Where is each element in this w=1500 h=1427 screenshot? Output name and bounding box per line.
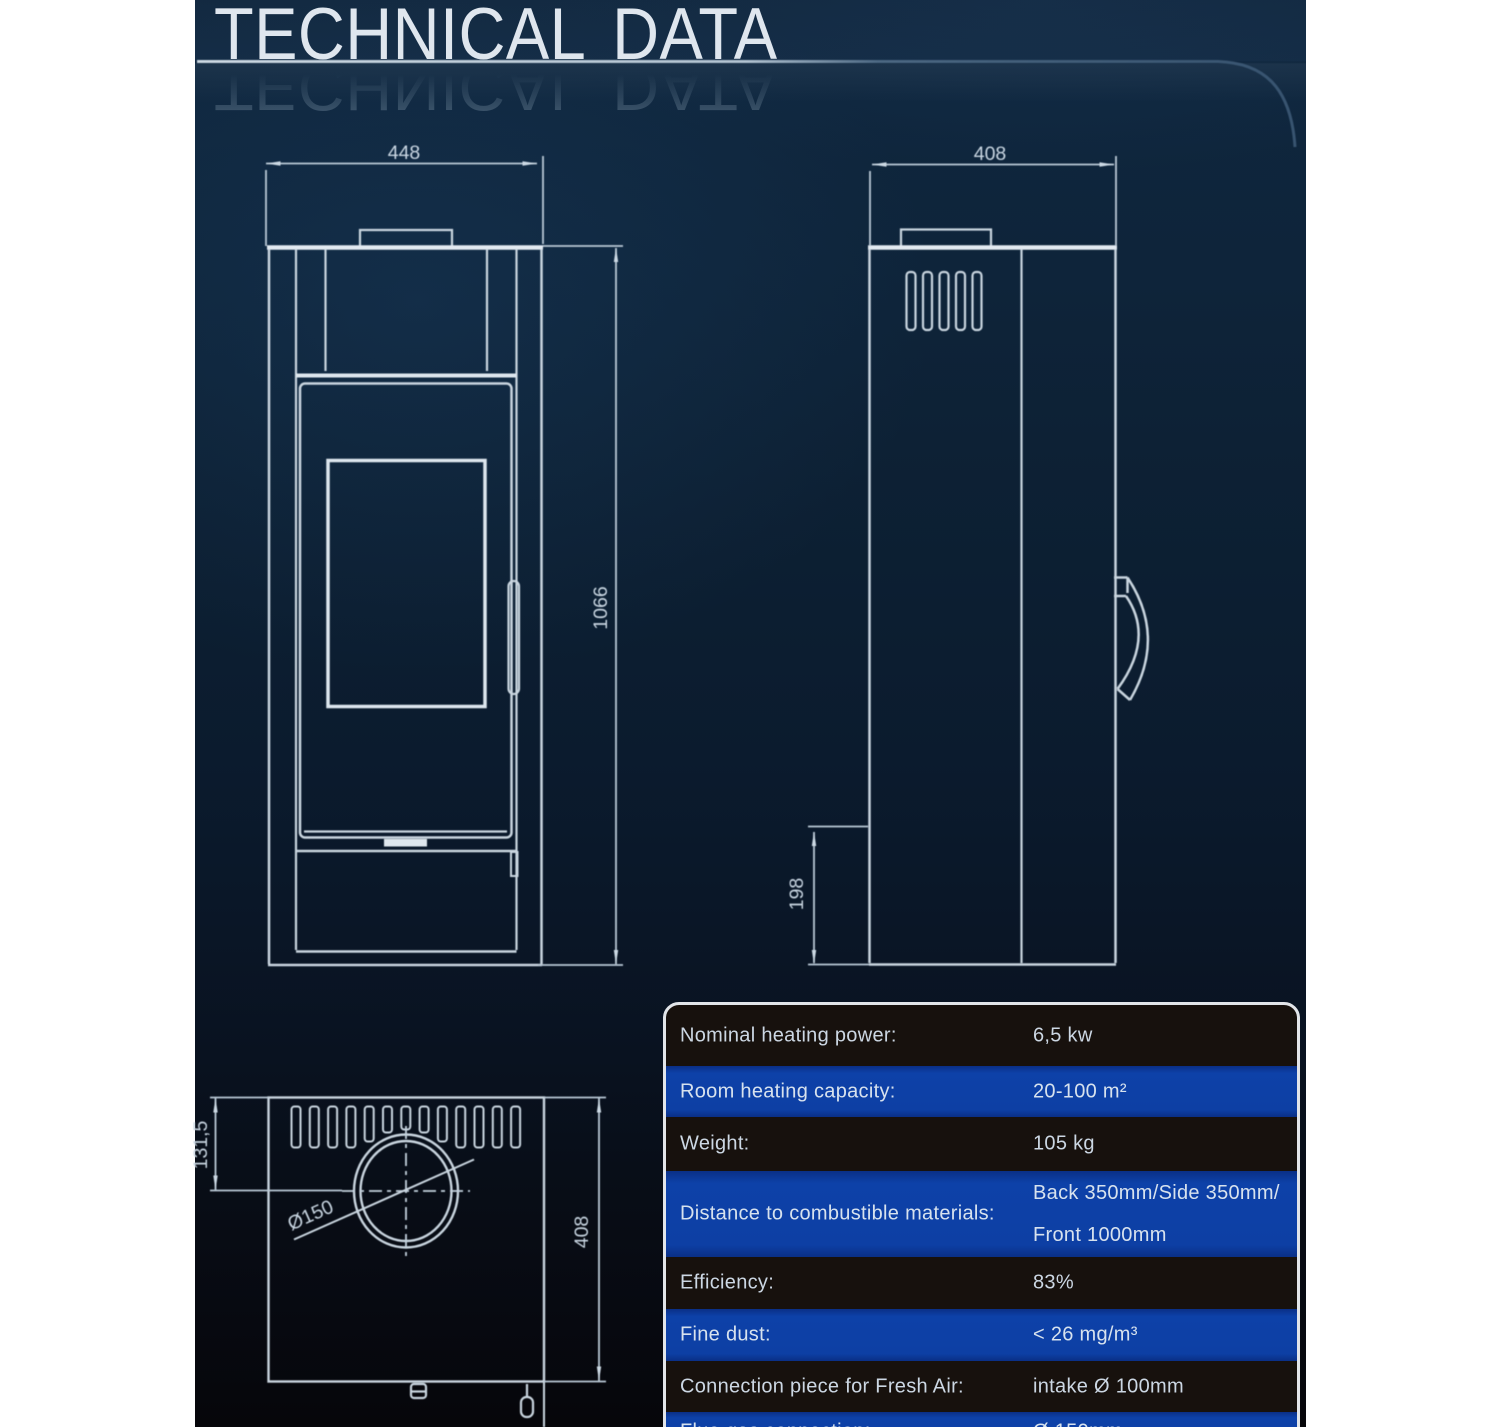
svg-text:131,5: 131,5 <box>190 1120 212 1169</box>
svg-text:198: 198 <box>786 878 808 911</box>
svg-text:1066: 1066 <box>590 586 612 629</box>
svg-text:448: 448 <box>388 142 421 164</box>
svg-text:408: 408 <box>571 1216 593 1249</box>
svg-text:408: 408 <box>974 143 1007 165</box>
svg-text:Ø150: Ø150 <box>284 1196 337 1236</box>
